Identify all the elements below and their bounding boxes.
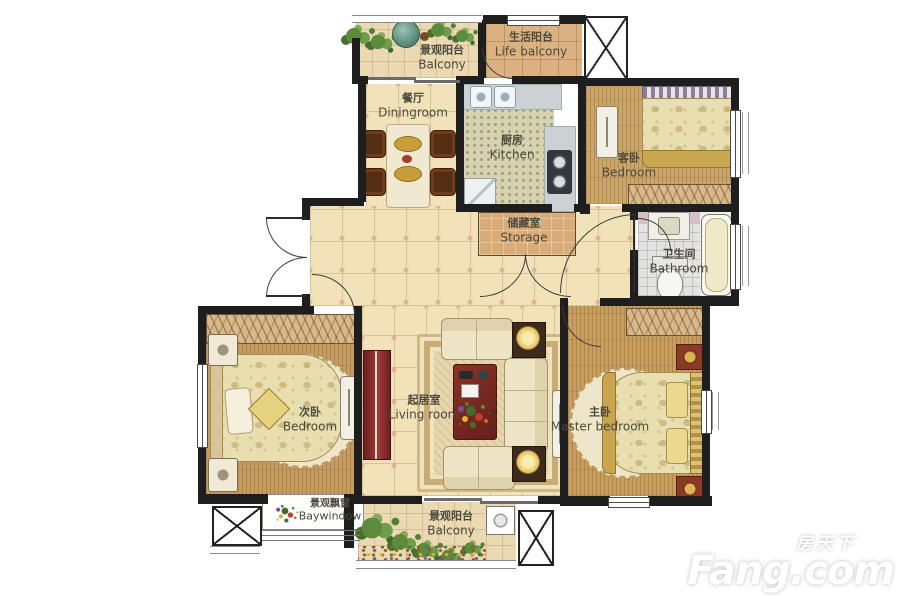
label-storage: 储藏室Storage (501, 217, 548, 244)
label-balcony-top: 景观阳台Balcony (418, 44, 466, 71)
duct-shaft (518, 510, 554, 566)
window (730, 224, 741, 290)
wall (302, 198, 364, 206)
sofa-right (504, 358, 548, 452)
door-leaf (633, 214, 635, 292)
wall (560, 306, 568, 504)
wall (622, 204, 739, 212)
sofa-top (441, 318, 513, 360)
sliding-door (414, 80, 460, 83)
window-sill (712, 392, 719, 430)
bay-window-flowers (282, 508, 289, 515)
elevator-shaft (584, 16, 628, 80)
bay-window-glass (262, 528, 360, 541)
dining-bowl (402, 155, 412, 163)
dining-plate (394, 136, 422, 152)
window (730, 110, 741, 178)
wall (358, 84, 366, 202)
window (507, 15, 560, 26)
wall (483, 15, 507, 24)
wall (198, 494, 268, 504)
label-balcony-bottom: 景观阳台Balcony (427, 510, 475, 537)
door-arc-entry-upper (266, 218, 307, 258)
wall (456, 84, 464, 206)
nightstand (676, 344, 704, 370)
dining-chair (430, 168, 456, 196)
label-life-balcony: 生活阳台Life balcony (495, 31, 567, 58)
wall (600, 298, 710, 306)
wall (354, 306, 362, 314)
window (608, 497, 650, 508)
sliding-door (368, 77, 416, 80)
dining-chair (430, 130, 456, 158)
fang-logo-english: Fang.com (687, 554, 894, 588)
wall (512, 76, 586, 84)
kitchen-sink (494, 86, 516, 108)
washing-machine (486, 506, 515, 535)
window-sill (742, 112, 749, 174)
lamp-glow (516, 450, 540, 474)
sofa-bottom (443, 446, 515, 490)
sliding-door (424, 498, 482, 501)
sliding-door (480, 501, 538, 504)
pillow (666, 382, 688, 418)
guest-bed (642, 98, 736, 154)
wall (198, 306, 314, 314)
guest-nightstand (596, 106, 618, 158)
tv-console (363, 350, 391, 460)
wall (354, 314, 362, 504)
dining-plate (394, 166, 422, 182)
window-sill (742, 226, 749, 286)
photo-frame (461, 384, 479, 398)
wall (456, 204, 552, 212)
wall (578, 84, 586, 206)
plant (362, 518, 383, 539)
label-living-room: 起居室Living room (389, 394, 460, 421)
remote (459, 371, 473, 379)
balcony-railing (356, 560, 516, 569)
duct-shaft (212, 506, 262, 546)
nightstand (208, 334, 238, 366)
nightstand (208, 458, 238, 492)
wall (731, 86, 739, 112)
railing (210, 546, 260, 554)
wall (352, 38, 360, 80)
label-bathroom: 卫生间Bathroom (650, 248, 709, 275)
kitchen-sink (470, 86, 492, 108)
door-leaf (266, 295, 306, 297)
stove (547, 150, 572, 194)
plant (431, 23, 445, 37)
window (701, 390, 712, 434)
wall (352, 76, 368, 84)
dish (478, 370, 488, 380)
wall (560, 298, 568, 306)
label-master-bedroom: 主卧Master bedroom (551, 406, 649, 433)
window (197, 364, 208, 448)
lamp-glow (516, 326, 540, 350)
balcony-railing (352, 15, 482, 23)
wall (702, 432, 710, 506)
plant (371, 35, 385, 49)
door-leaf (266, 217, 306, 219)
plant (456, 30, 468, 42)
label-kitchen: 厨房Kitchen (489, 134, 534, 161)
wall (702, 306, 710, 390)
wall (580, 204, 590, 214)
label-guest-bedroom: 客卧Bedroom (602, 152, 656, 179)
wall (198, 314, 206, 364)
label-dining-room: 餐厅Diningroom (378, 92, 448, 119)
flower-pot (420, 32, 429, 41)
label-bay-window: 景观飘窗Baywindow (299, 499, 362, 524)
wall (354, 496, 422, 504)
master-wardrobe (626, 308, 706, 336)
wall (731, 176, 739, 226)
wall (558, 15, 586, 24)
flower-bouquet (466, 406, 476, 416)
wall (538, 496, 564, 504)
floor-plan: 景观阳台Balcony 生活阳台Life balcony 餐厅Diningroo… (0, 0, 900, 600)
wall (560, 496, 610, 506)
wall (198, 446, 206, 496)
fang-logo-watermark: 房天下 Fang.com (687, 529, 894, 588)
label-second-bedroom: 次卧Bedroom (283, 406, 337, 433)
potted-tree (392, 20, 420, 48)
door-arc-entry-lower (266, 257, 307, 297)
pillow (666, 428, 688, 464)
